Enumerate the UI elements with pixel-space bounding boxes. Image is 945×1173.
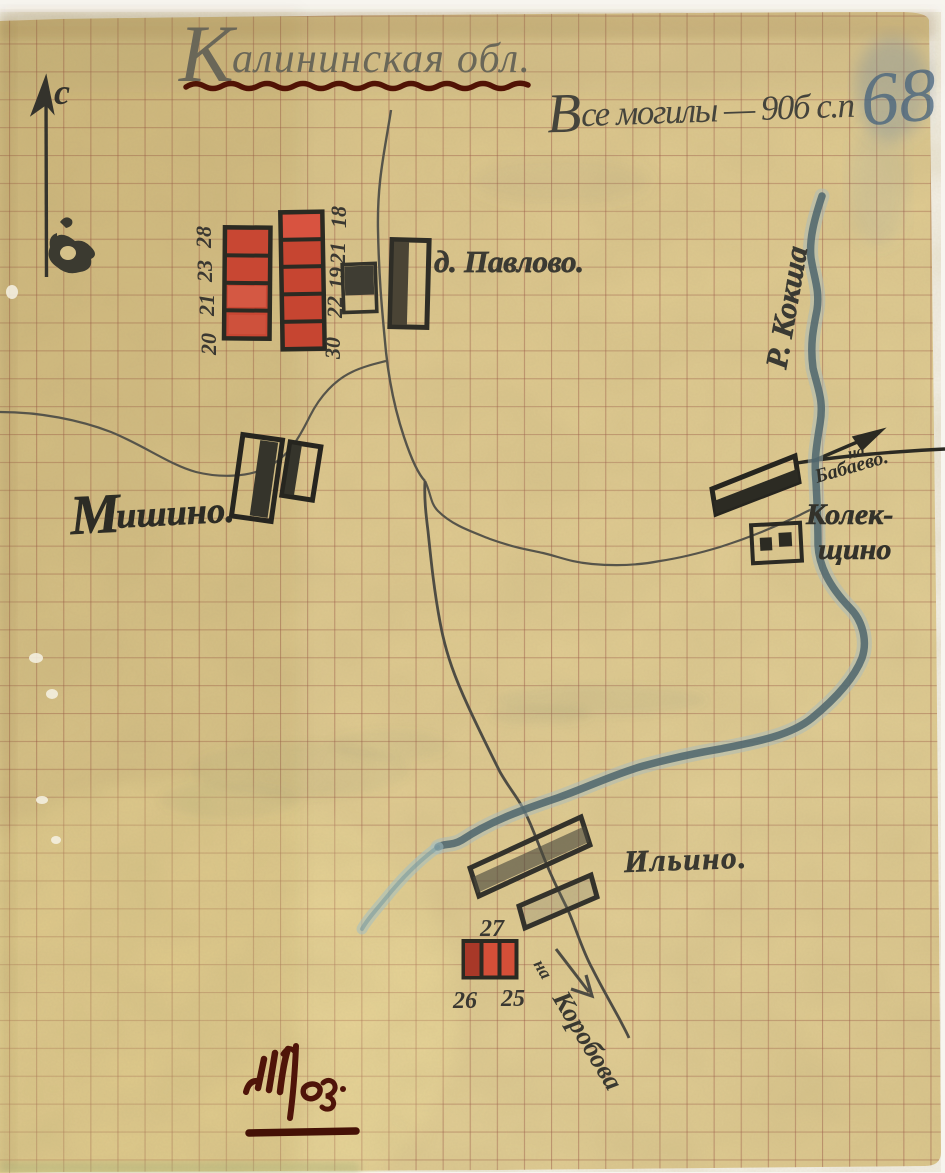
svg-text:25: 25	[500, 986, 525, 1012]
svg-text:д. Павлово.: д. Павлово.	[434, 244, 584, 279]
svg-text:28: 28	[191, 226, 216, 249]
svg-text:68: 68	[857, 52, 940, 142]
svg-text:20: 20	[196, 333, 221, 356]
svg-text:30: 30	[320, 337, 345, 360]
svg-text:ишино.: ишино.	[115, 490, 235, 536]
svg-text:27: 27	[479, 916, 505, 942]
svg-text:18: 18	[326, 206, 351, 228]
svg-text:26: 26	[452, 988, 477, 1014]
svg-text:Колек-: Колек-	[805, 498, 893, 531]
svg-text:21: 21	[194, 294, 219, 317]
svg-text:23: 23	[192, 260, 217, 283]
svg-text:щино: щино	[818, 533, 891, 566]
svg-text:алининская обл.: алининская обл.	[232, 36, 530, 82]
svg-text:В: В	[546, 82, 582, 145]
svg-text:с: с	[54, 72, 70, 112]
svg-text:Ильино.: Ильино.	[622, 840, 746, 879]
svg-text:21: 21	[325, 242, 350, 265]
